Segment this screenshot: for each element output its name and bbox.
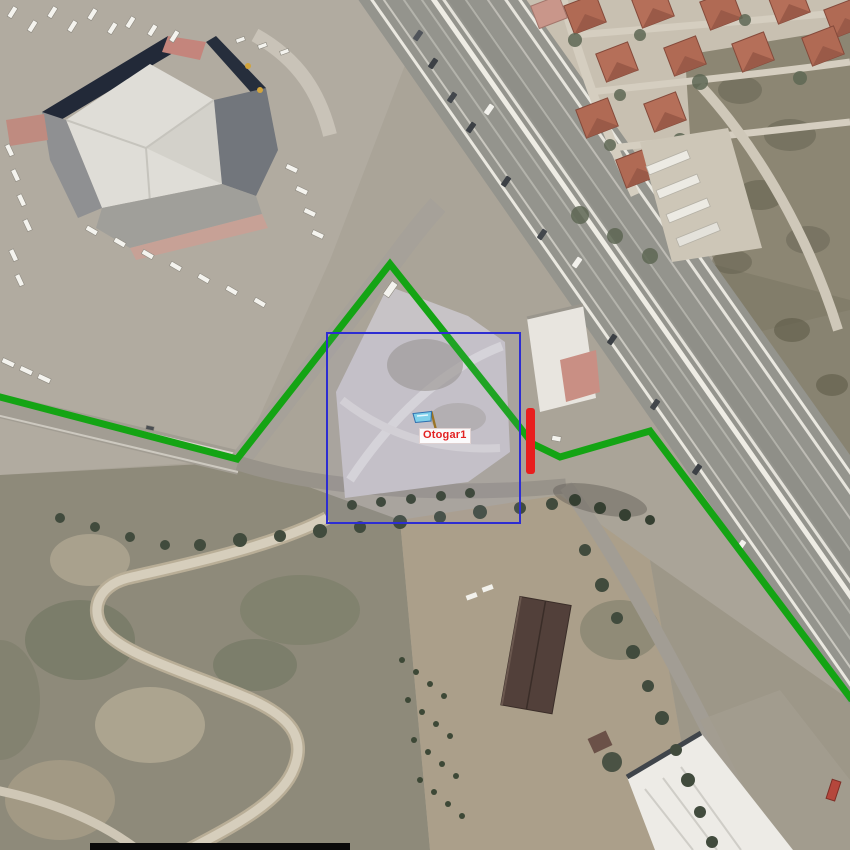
marker-label[interactable]: Otogar1 [419,428,471,444]
red-bar-marker[interactable] [526,408,535,474]
map-overlays [0,0,850,850]
flag-highlight [417,415,428,416]
map-viewport[interactable]: Otogar1 [0,0,850,850]
flag-cloth [413,412,432,423]
